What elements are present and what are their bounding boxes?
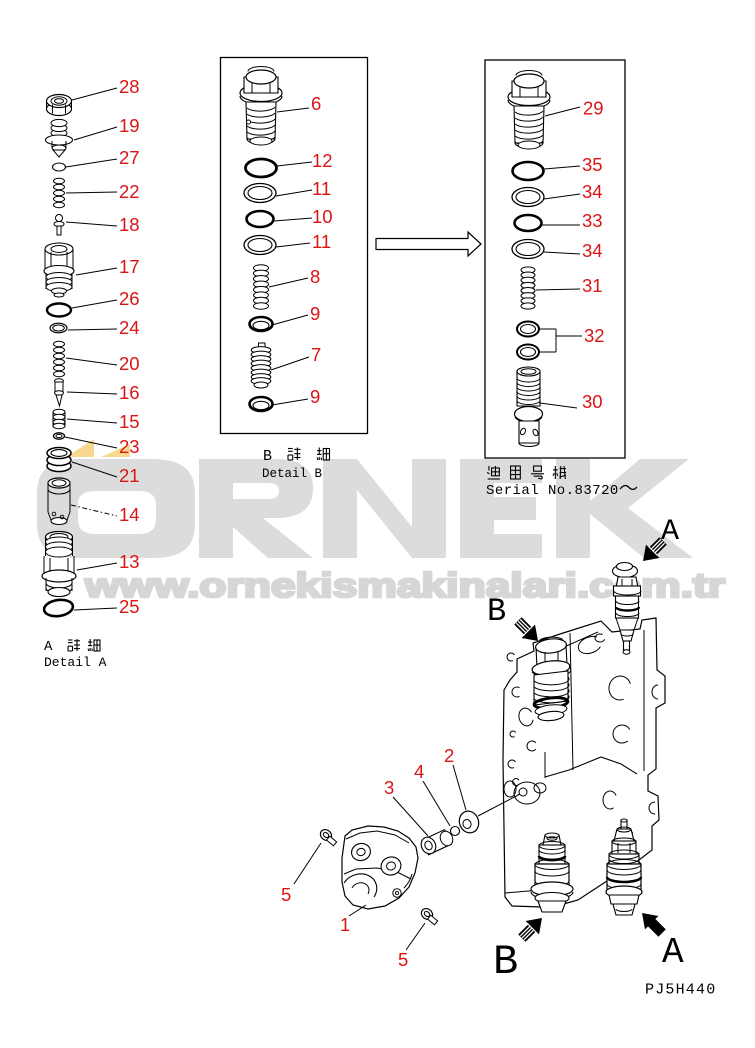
svg-text:Detail B: Detail B [262, 467, 323, 481]
svg-text:11: 11 [312, 178, 331, 199]
svg-text:21: 21 [119, 465, 140, 486]
svg-text:26: 26 [119, 288, 140, 309]
svg-text:1: 1 [340, 914, 350, 935]
svg-text:29: 29 [583, 98, 604, 119]
svg-text:27: 27 [119, 147, 140, 168]
svg-text:A: A [44, 639, 53, 655]
svg-text:34: 34 [582, 181, 603, 202]
svg-text:5: 5 [398, 949, 408, 970]
svg-text:11: 11 [312, 231, 331, 252]
svg-text:25: 25 [119, 596, 140, 617]
svg-text:PJ5H440: PJ5H440 [645, 982, 716, 999]
svg-text:28: 28 [119, 76, 140, 97]
svg-text:8: 8 [310, 266, 320, 287]
svg-text:3: 3 [384, 777, 394, 798]
svg-text:34: 34 [582, 240, 603, 261]
svg-text:2: 2 [444, 745, 454, 766]
svg-text:18: 18 [119, 214, 140, 235]
svg-text:16: 16 [119, 382, 140, 403]
svg-text:19: 19 [119, 115, 140, 136]
svg-text:A: A [661, 515, 679, 549]
svg-text:4: 4 [414, 761, 424, 782]
svg-text:14: 14 [119, 504, 140, 525]
svg-text:Serial No.83720: Serial No.83720 [486, 483, 619, 499]
svg-text:10: 10 [312, 206, 333, 227]
svg-text:6: 6 [311, 93, 321, 114]
svg-text:24: 24 [119, 317, 140, 338]
svg-text:31: 31 [582, 275, 603, 296]
svg-text:17: 17 [119, 256, 140, 277]
svg-text:B: B [263, 448, 272, 465]
svg-text:22: 22 [119, 181, 140, 202]
svg-text:15: 15 [119, 411, 140, 432]
svg-text:A: A [662, 932, 684, 973]
svg-text:9: 9 [310, 386, 320, 407]
svg-text:7: 7 [311, 344, 321, 365]
svg-text:33: 33 [582, 210, 603, 231]
svg-text:B: B [487, 593, 506, 630]
svg-text:13: 13 [119, 551, 140, 572]
svg-text:32: 32 [584, 325, 605, 346]
svg-text:5: 5 [281, 884, 291, 905]
svg-text:30: 30 [582, 391, 603, 412]
svg-text:23: 23 [119, 436, 140, 457]
svg-text:9: 9 [310, 303, 320, 324]
svg-text:B: B [493, 938, 518, 986]
svg-text:Detail A: Detail A [44, 655, 107, 670]
svg-text:12: 12 [312, 150, 333, 171]
svg-text:20: 20 [119, 353, 140, 374]
svg-text:35: 35 [582, 154, 603, 175]
